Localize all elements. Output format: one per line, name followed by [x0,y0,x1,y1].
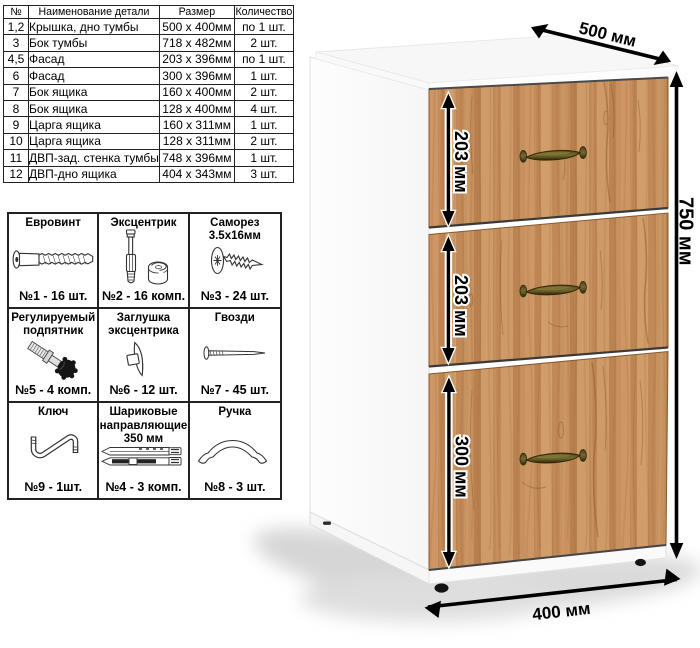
svg-text:750 мм: 750 мм [675,197,697,266]
svg-text:203 мм: 203 мм [451,131,471,193]
svg-text:203 мм: 203 мм [451,275,471,337]
svg-text:300 мм: 300 мм [452,436,472,498]
